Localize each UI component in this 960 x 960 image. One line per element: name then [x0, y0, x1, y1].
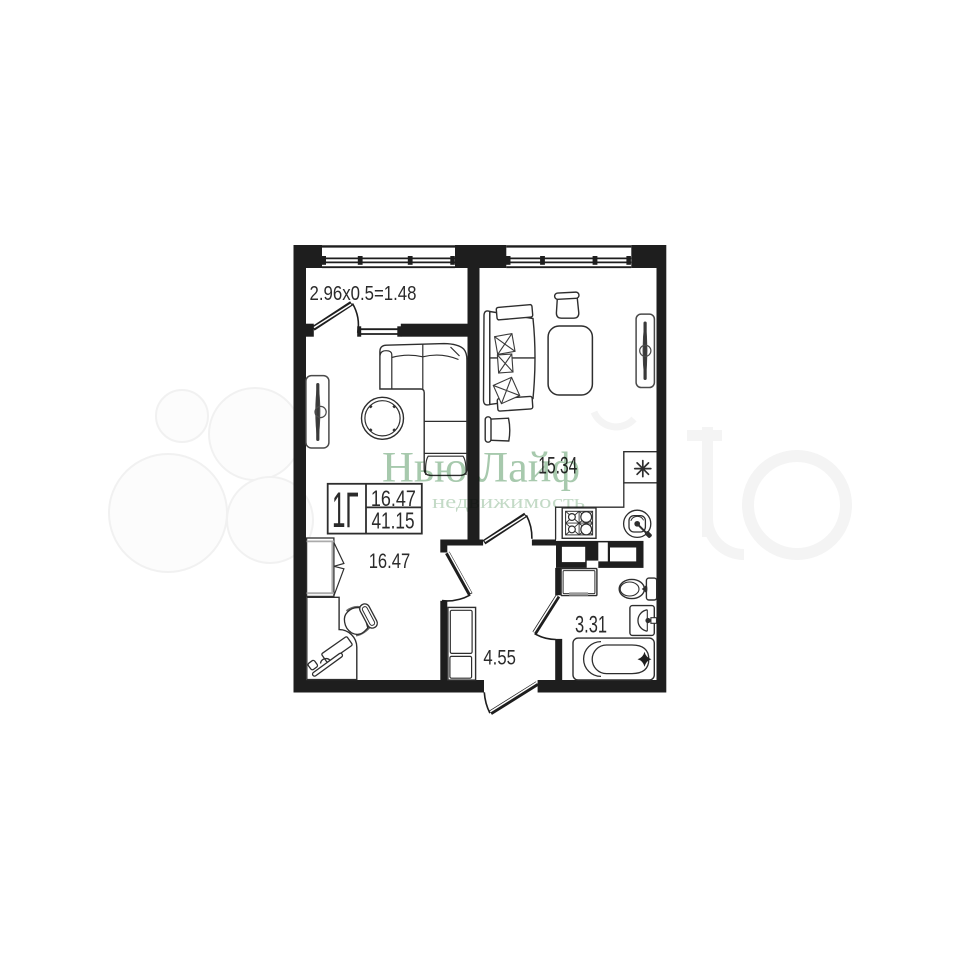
svg-text:2.96x0.5=1.48: 2.96x0.5=1.48: [310, 282, 417, 305]
svg-text:недвижимость: недвижимость: [432, 492, 585, 513]
svg-text:16.47: 16.47: [369, 549, 411, 573]
svg-text:4.55: 4.55: [483, 645, 516, 669]
svg-text:41.15: 41.15: [372, 508, 415, 534]
svg-text:Нью Лайф: Нью Лайф: [382, 445, 580, 492]
svg-text:1Г: 1Г: [332, 482, 359, 538]
svg-text:3.31: 3.31: [575, 612, 607, 639]
